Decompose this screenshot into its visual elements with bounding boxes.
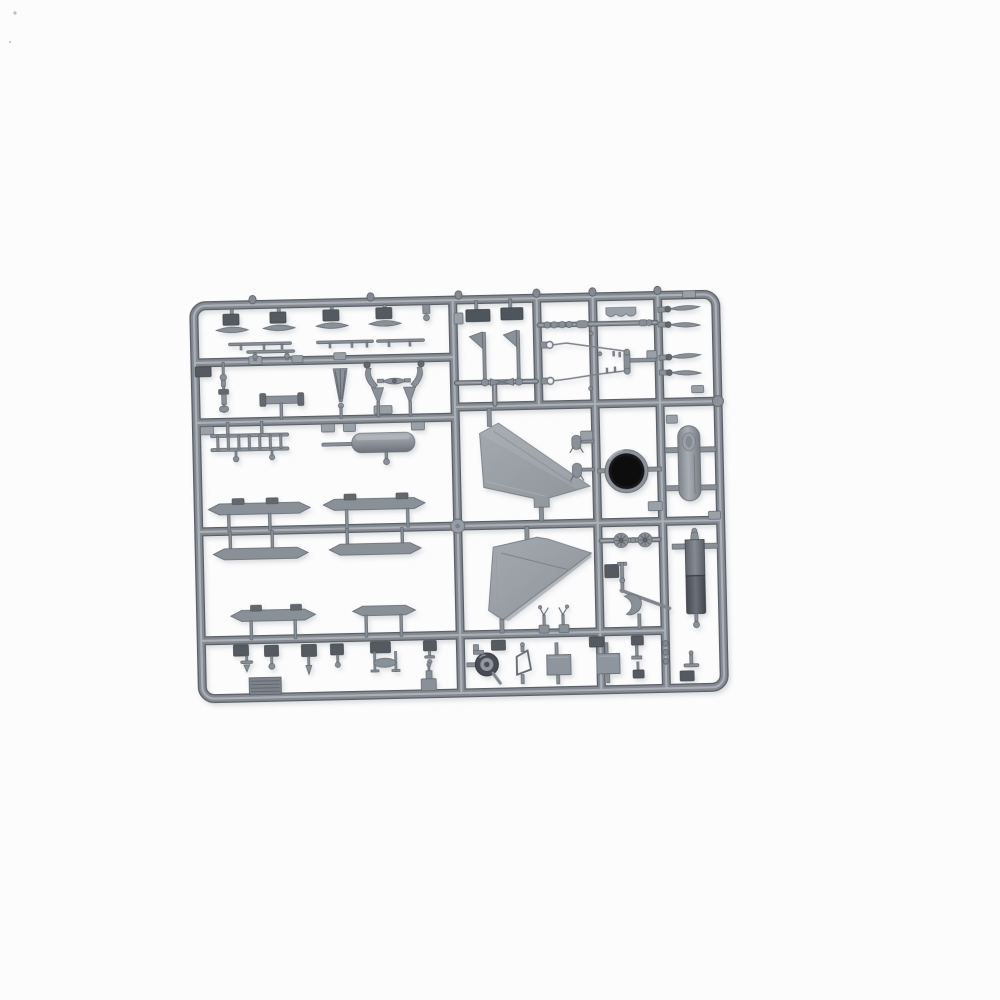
part-exhaust-nozzle (597, 449, 662, 493)
dust-specks (9, 11, 17, 43)
part-antenna-rod-3 (376, 339, 424, 347)
part-mini-stabilizer-4 (369, 304, 401, 326)
part-small-pin-3 (306, 656, 312, 674)
part-stepped-block (421, 663, 437, 691)
part-stabilator-blade-3 (659, 352, 701, 361)
part-drop-tank-half-2 (672, 528, 720, 629)
part-access-hatch-1 (546, 643, 571, 685)
part-stabilator-blade-2 (658, 322, 700, 329)
parts-bottom-left-row (230, 601, 437, 695)
part-stabilator-blade-4 (659, 370, 701, 377)
part-antenna-rod-1 (228, 342, 291, 350)
part-pitot-probe-1 (538, 605, 549, 633)
part-dark-plate-1 (466, 309, 490, 322)
part-small-pin-1 (241, 656, 253, 672)
part-flag-strut-1 (469, 332, 486, 385)
part-wishbone-yoke (364, 361, 426, 418)
part-small-fittings-column (218, 362, 229, 412)
part-small-pin-5 (425, 651, 435, 664)
runner-knobs-lower-right (663, 641, 669, 665)
part-mini-stabilizer-3 (316, 306, 348, 328)
part-pitot-probe-2 (559, 605, 570, 633)
part-antenna-rod-2 (316, 340, 373, 348)
part-small-lever (631, 646, 644, 678)
part-flat-tab (195, 367, 211, 377)
part-stabilator-blade-1 (658, 304, 700, 313)
part-dark-plate-2 (501, 308, 523, 320)
sprue (193, 285, 729, 699)
part-vertical-fin-2 (487, 525, 593, 633)
part-louvered-vent-plate (249, 677, 281, 695)
parts-stabilator-blades (658, 304, 702, 377)
part-folded-chute (333, 369, 348, 419)
part-boarding-ladder (210, 421, 289, 463)
part-drop-tank-half-1 (664, 425, 717, 501)
part-mini-stabilizer-1 (216, 309, 249, 333)
sprue-photo (0, 0, 1000, 1000)
parts-third-left-row (206, 418, 426, 560)
part-umbrella-fitting (680, 651, 700, 681)
part-wing-pylon (260, 393, 305, 420)
part-windscreen-frame (516, 642, 531, 683)
photo-stage (0, 0, 1000, 1000)
part-actuator-wire-2 (541, 367, 626, 392)
part-flag-strut-2 (503, 330, 520, 384)
part-pod-with-legs (371, 651, 400, 672)
part-small-knob (423, 305, 430, 321)
part-actuator-wire-1 (540, 331, 626, 359)
sprue-runner-frame (193, 285, 729, 699)
parts-bottom-center (466, 636, 644, 686)
parts-flag-cell (466, 299, 525, 387)
part-mini-stabilizer-2 (263, 308, 296, 331)
part-exhaust-pipe (322, 432, 416, 466)
parts-top-left-row (216, 304, 431, 362)
flag-runner-fittings (481, 378, 522, 386)
part-wheel-hub-halves (614, 532, 653, 547)
part-small-pin-4 (335, 655, 340, 668)
part-small-pin-2 (269, 656, 275, 669)
